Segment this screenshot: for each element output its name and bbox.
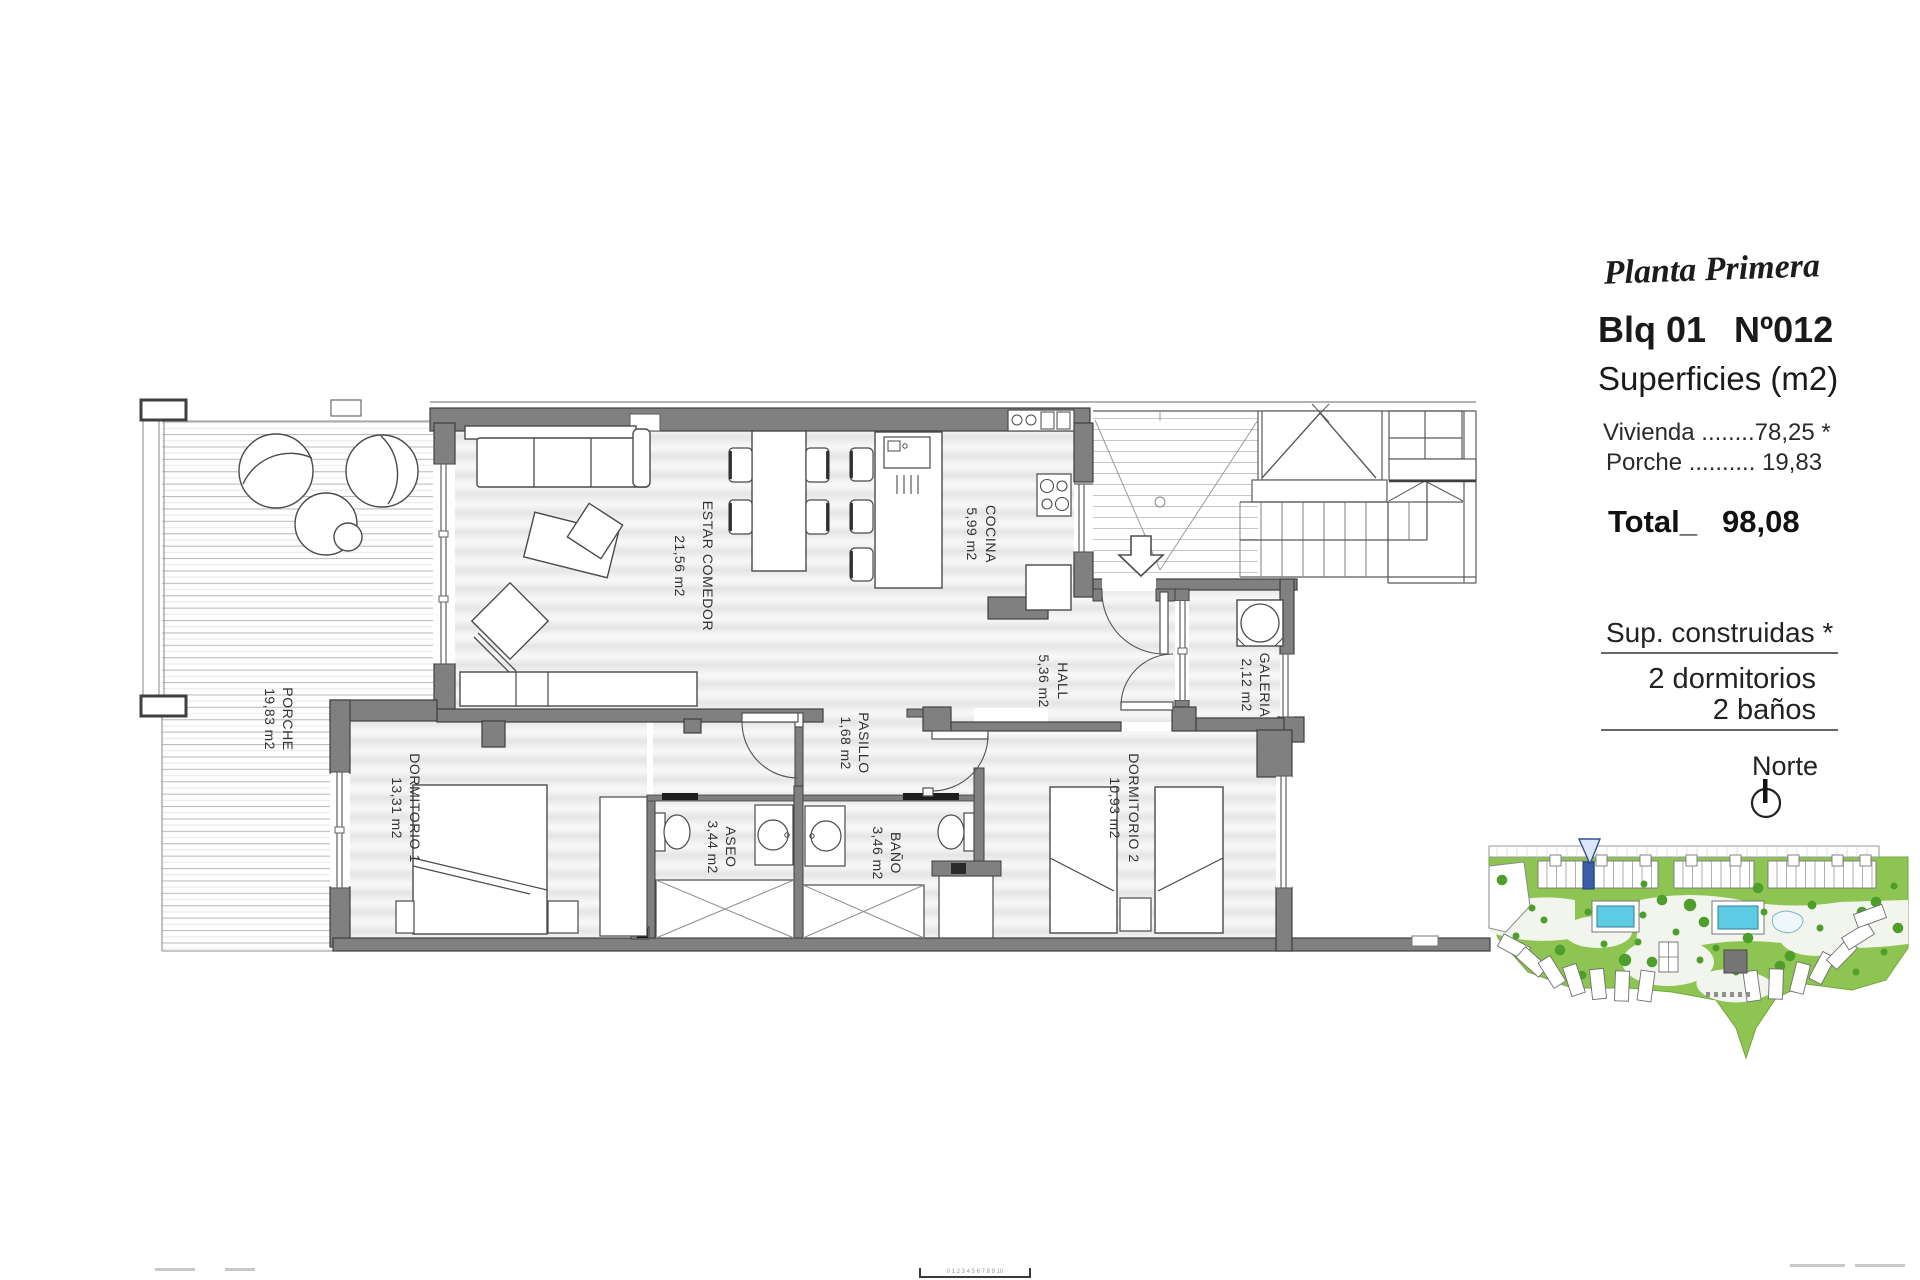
svg-text:PASILLO: PASILLO bbox=[856, 712, 872, 774]
svg-text:2 dormitorios: 2 dormitorios bbox=[1648, 663, 1816, 695]
svg-text:Blq 01: Blq 01 bbox=[1598, 309, 1706, 350]
svg-text:1,68 m2: 1,68 m2 bbox=[838, 716, 854, 769]
svg-text:BAÑO: BAÑO bbox=[888, 832, 904, 874]
svg-text:3,44 m2: 3,44 m2 bbox=[705, 820, 721, 873]
svg-text:21,56 m2: 21,56 m2 bbox=[672, 535, 688, 597]
svg-text:10,93 m2: 10,93 m2 bbox=[1107, 777, 1123, 839]
svg-text:3,46 m2: 3,46 m2 bbox=[870, 826, 886, 879]
svg-text:COCINA: COCINA bbox=[983, 505, 999, 563]
svg-text:Nº012: Nº012 bbox=[1734, 309, 1833, 350]
svg-text:Superficies (m2): Superficies (m2) bbox=[1598, 360, 1838, 397]
svg-text:DORMITORIO 2: DORMITORIO 2 bbox=[1126, 753, 1142, 863]
svg-text:ESTAR COMEDOR: ESTAR COMEDOR bbox=[700, 501, 716, 631]
svg-text:Norte: Norte bbox=[1752, 751, 1818, 781]
svg-text:DORMITORIO 1: DORMITORIO 1 bbox=[407, 753, 423, 863]
svg-text:Planta Primera: Planta Primera bbox=[1602, 247, 1820, 292]
svg-text:13,31 m2: 13,31 m2 bbox=[389, 777, 405, 839]
svg-text:Porche .......... 19,83: Porche .......... 19,83 bbox=[1606, 449, 1822, 476]
svg-text:19,83 m2: 19,83 m2 bbox=[262, 688, 278, 750]
svg-text:Sup. construidas *: Sup. construidas * bbox=[1606, 617, 1833, 648]
svg-text:98,08: 98,08 bbox=[1722, 504, 1800, 539]
svg-text:GALERIA: GALERIA bbox=[1257, 653, 1273, 718]
svg-text:0 1 2 3 4 5 6 7 8 9: 0 1 2 3 4 5 6 7 8 9 10 bbox=[947, 1269, 1004, 1275]
svg-text:HALL: HALL bbox=[1055, 662, 1071, 699]
svg-text:5,36 m2: 5,36 m2 bbox=[1036, 654, 1052, 707]
svg-text:2 baños: 2 baños bbox=[1713, 694, 1816, 726]
svg-text:5,99 m2: 5,99 m2 bbox=[964, 507, 980, 560]
svg-text:2,12 m2: 2,12 m2 bbox=[1239, 658, 1255, 711]
svg-text:ASEO: ASEO bbox=[723, 826, 739, 867]
svg-text:Vivienda ........78,25 *: Vivienda ........78,25 * bbox=[1603, 419, 1831, 446]
svg-text:PORCHE: PORCHE bbox=[280, 687, 296, 751]
svg-text:Total_: Total_ bbox=[1608, 504, 1698, 539]
